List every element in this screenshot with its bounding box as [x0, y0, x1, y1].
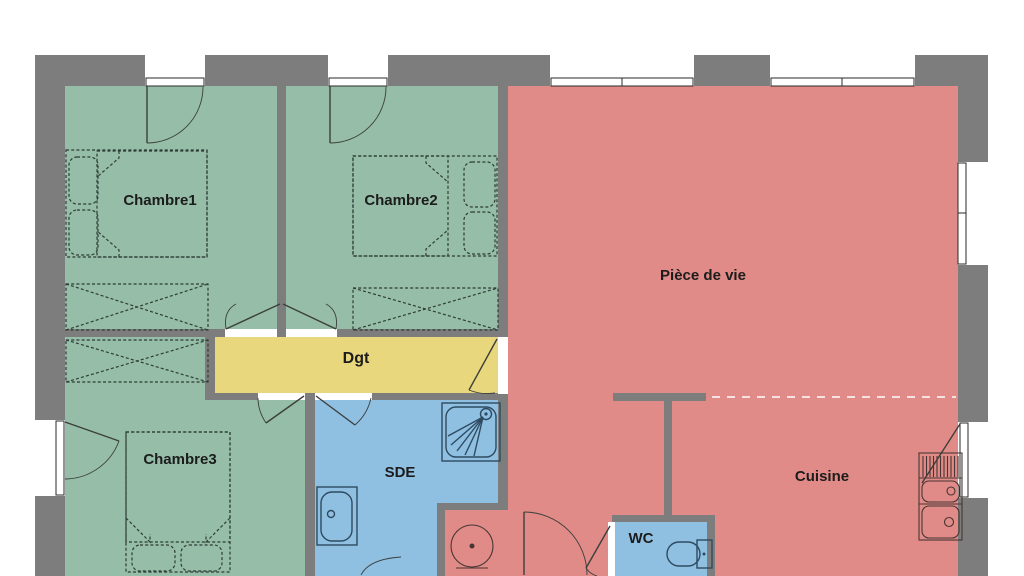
- door-opening-sde: [315, 393, 372, 400]
- door-opening-chambre2: [286, 329, 337, 337]
- label-cuisine: Cuisine: [795, 468, 849, 485]
- label-dgt: Dgt: [343, 350, 370, 367]
- room-sde-lower: [315, 503, 437, 576]
- floor-plan: Chambre1 Chambre2 Pièce de vie Dgt Chamb…: [0, 0, 1024, 576]
- wall-partition-bar: [613, 393, 706, 401]
- room-chambre3: [65, 400, 305, 576]
- wall-wc-top: [612, 515, 715, 522]
- floor-plan-svg: Chambre1 Chambre2 Pièce de vie Dgt Chamb…: [0, 0, 1024, 576]
- label-chambre2: Chambre2: [364, 192, 437, 209]
- label-wc: WC: [629, 530, 654, 547]
- wall-chambre1-chambre2: [277, 86, 286, 329]
- door-opening-dgt-living: [498, 337, 508, 394]
- door-opening-chambre1: [225, 329, 277, 337]
- wall-corridor-left: [205, 337, 215, 400]
- wall-corridor-top-b: [277, 329, 286, 337]
- label-piece-de-vie: Pièce de vie: [660, 267, 746, 284]
- wall-partition-stem: [664, 401, 672, 515]
- label-chambre1: Chambre1: [123, 192, 196, 209]
- wall-sde-step-h: [437, 503, 508, 510]
- label-chambre3: Chambre3: [143, 451, 216, 468]
- wall-chambre2-living: [498, 86, 508, 337]
- window-icon-chambre3: [56, 421, 64, 495]
- door-opening-wc: [608, 522, 615, 576]
- door-opening-chambre3: [258, 393, 305, 400]
- wall-corridor-bottom-a: [205, 393, 258, 400]
- room-piece-de-vie: [508, 86, 958, 576]
- wall-chambre3-sde: [305, 393, 315, 576]
- label-sde: SDE: [385, 464, 416, 481]
- wall-corridor-bottom-b: [372, 393, 498, 400]
- wall-sde-step-v: [437, 505, 445, 576]
- window-icon-chambre2: [329, 78, 387, 86]
- window-icon-cuisine: [960, 423, 968, 497]
- wall-corridor-top-a: [215, 329, 225, 337]
- window-icon-chambre1: [146, 78, 204, 86]
